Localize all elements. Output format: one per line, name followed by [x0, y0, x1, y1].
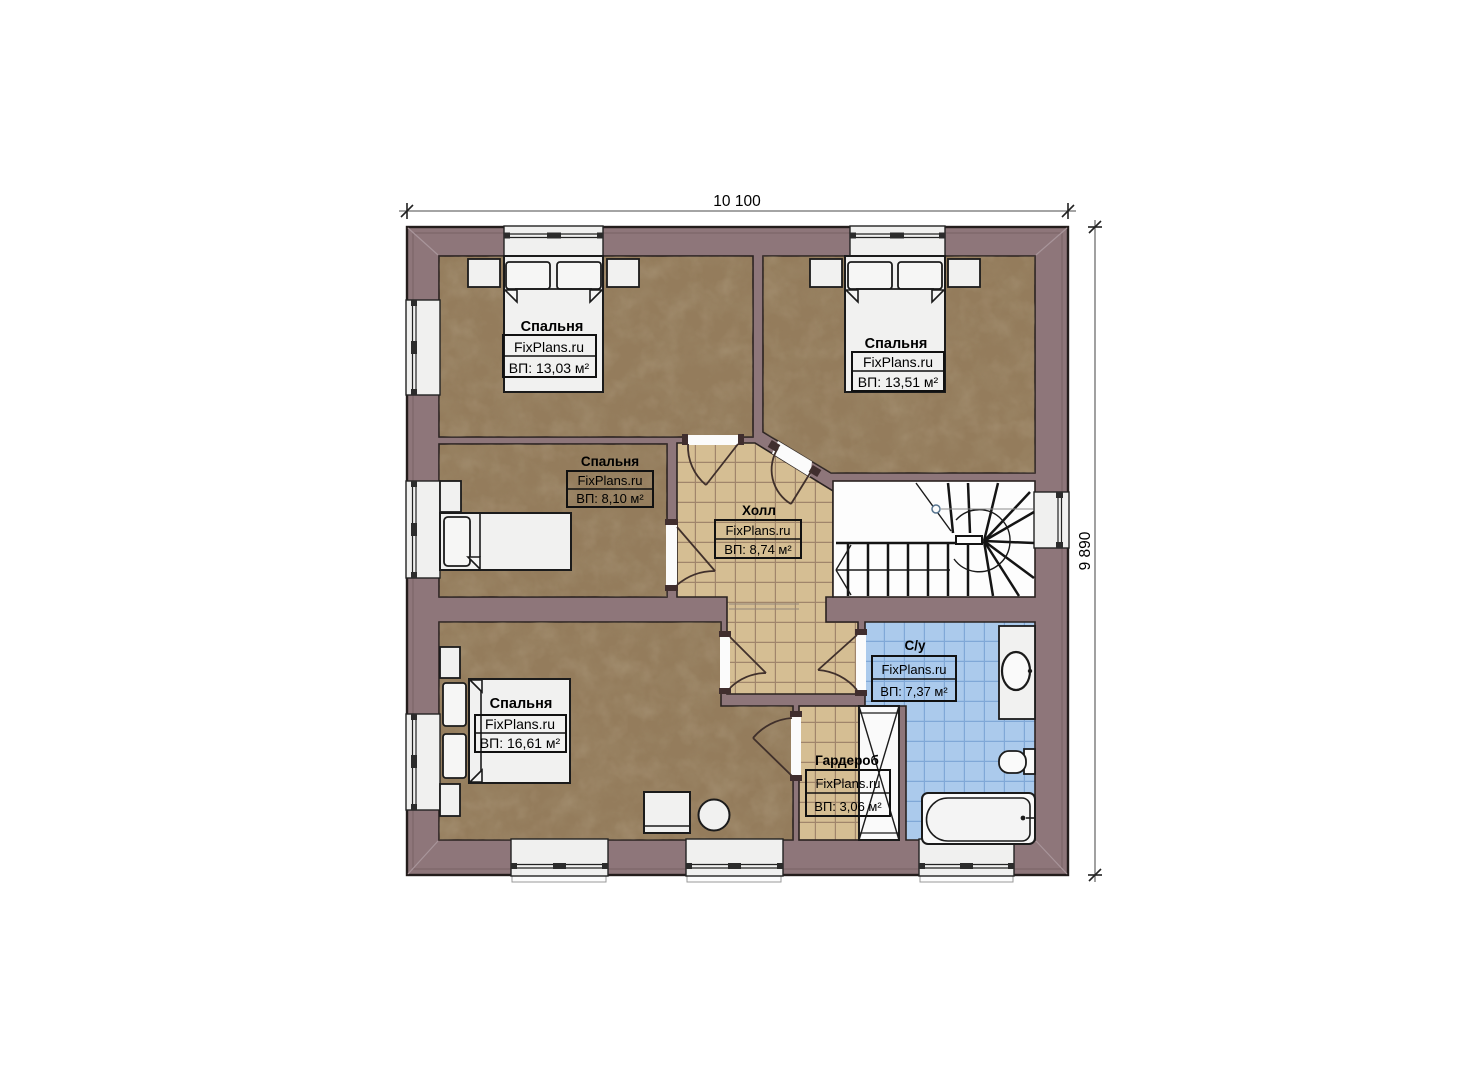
svg-text:FixPlans.ru: FixPlans.ru [514, 339, 584, 355]
svg-text:ВП: 8,74 м²: ВП: 8,74 м² [724, 542, 792, 557]
svg-text:ВП: 13,03 м²: ВП: 13,03 м² [509, 360, 590, 376]
svg-text:Спальня: Спальня [581, 454, 639, 469]
svg-text:Гардероб: Гардероб [815, 753, 879, 768]
svg-text:FixPlans.ru: FixPlans.ru [881, 662, 946, 677]
svg-text:FixPlans.ru: FixPlans.ru [815, 776, 880, 791]
svg-text:FixPlans.ru: FixPlans.ru [577, 473, 642, 488]
svg-text:Холл: Холл [742, 503, 776, 518]
svg-text:ВП: 3,06 м²: ВП: 3,06 м² [814, 799, 882, 814]
svg-text:FixPlans.ru: FixPlans.ru [863, 354, 933, 370]
svg-text:Спальня: Спальня [521, 319, 584, 335]
svg-text:ВП: 7,37 м²: ВП: 7,37 м² [880, 684, 948, 699]
svg-text:С/у: С/у [904, 638, 926, 653]
svg-text:ВП: 8,10 м²: ВП: 8,10 м² [576, 491, 644, 506]
svg-text:9 890: 9 890 [1077, 531, 1094, 570]
svg-text:ВП: 13,51 м²: ВП: 13,51 м² [858, 374, 939, 390]
svg-text:ВП: 16,61 м²: ВП: 16,61 м² [480, 735, 561, 751]
svg-text:Спальня: Спальня [490, 696, 553, 712]
svg-text:FixPlans.ru: FixPlans.ru [485, 716, 555, 732]
svg-text:FixPlans.ru: FixPlans.ru [725, 523, 790, 538]
svg-text:Спальня: Спальня [865, 336, 928, 352]
svg-text:10 100: 10 100 [713, 193, 761, 210]
